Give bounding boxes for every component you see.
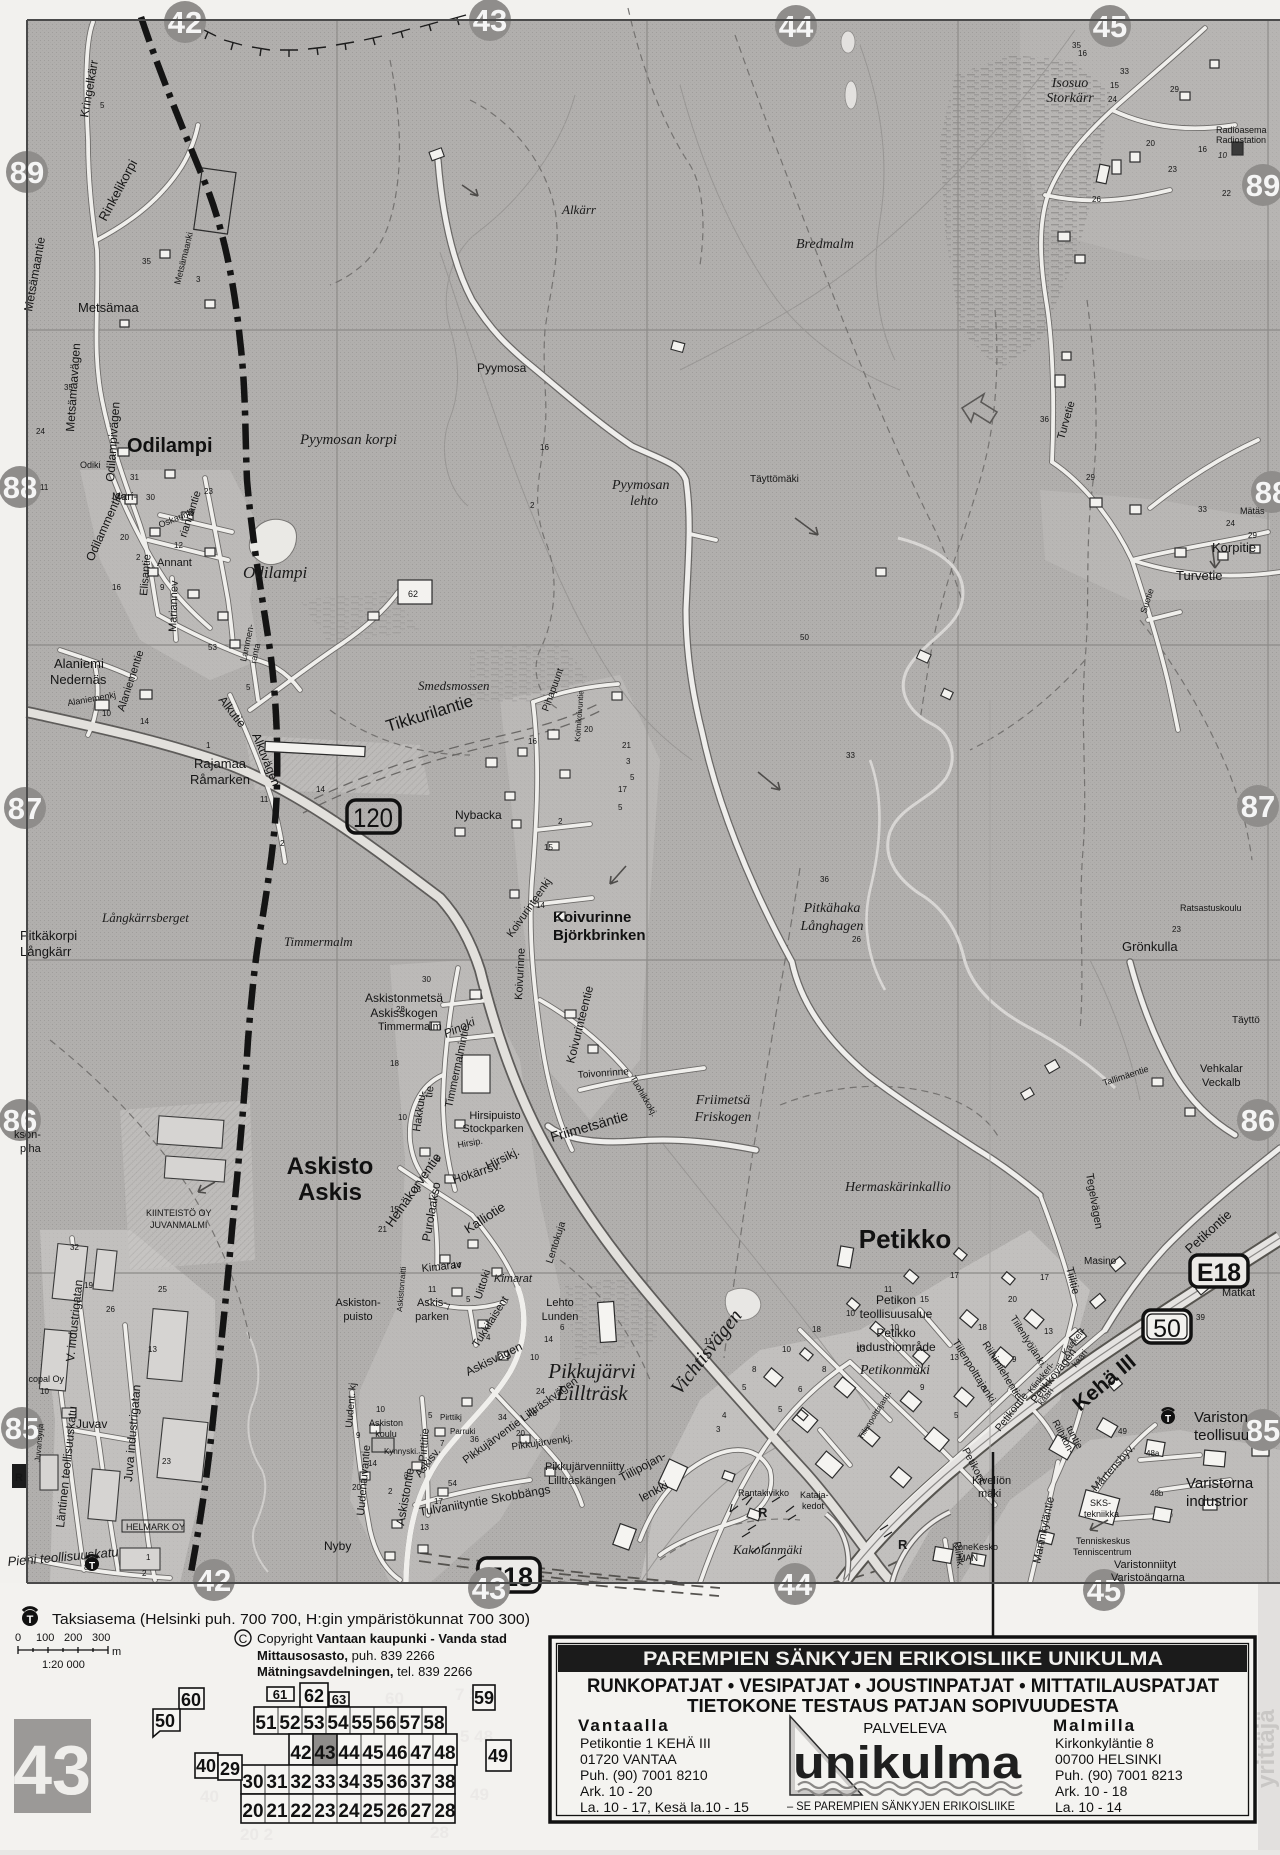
svg-text:T: T bbox=[1165, 1414, 1171, 1425]
svg-text:Askiston: Askiston bbox=[369, 1418, 403, 1428]
svg-text:T: T bbox=[27, 1614, 34, 1626]
svg-text:43: 43 bbox=[472, 1571, 506, 1606]
svg-text:Pyymosan: Pyymosan bbox=[611, 478, 670, 493]
svg-text:13: 13 bbox=[950, 1353, 959, 1362]
svg-text:45: 45 bbox=[362, 1743, 384, 1764]
svg-text:Nedernäs: Nedernäs bbox=[50, 672, 107, 687]
svg-text:PAREMPIEN SÄNKYJEN ERIKOISLIIK: PAREMPIEN SÄNKYJEN ERIKOISLIIKE UNIKULMA bbox=[643, 1649, 1163, 1670]
svg-text:30: 30 bbox=[422, 975, 431, 984]
svg-text:mäki: mäki bbox=[978, 1488, 1001, 1500]
svg-text:Matkat: Matkat bbox=[1222, 1287, 1255, 1299]
svg-text:00700 HELSINKI: 00700 HELSINKI bbox=[1055, 1751, 1162, 1767]
svg-text:Koivurinne: Koivurinne bbox=[553, 909, 631, 926]
svg-text:Rajamaa: Rajamaa bbox=[194, 756, 247, 771]
svg-text:KIINTEISTÖ OY: KIINTEISTÖ OY bbox=[146, 1208, 212, 1218]
svg-text:20: 20 bbox=[120, 533, 129, 542]
svg-text:8: 8 bbox=[822, 1365, 827, 1374]
svg-text:Askistonmetsä: Askistonmetsä bbox=[365, 991, 443, 1005]
svg-text:tie: tie bbox=[423, 1085, 437, 1098]
svg-text:3: 3 bbox=[404, 1471, 409, 1480]
svg-text:14: 14 bbox=[544, 1335, 553, 1344]
svg-text:Täyttö: Täyttö bbox=[1232, 1015, 1260, 1026]
svg-text:Hirsipuisto: Hirsipuisto bbox=[469, 1110, 520, 1122]
svg-text:6: 6 bbox=[798, 1385, 803, 1394]
svg-text:Turvetie: Turvetie bbox=[1176, 568, 1222, 583]
svg-text:Nybacka: Nybacka bbox=[455, 808, 502, 822]
svg-text:R: R bbox=[758, 1505, 768, 1520]
svg-text:24: 24 bbox=[338, 1801, 360, 1822]
svg-text:52: 52 bbox=[279, 1713, 300, 1734]
svg-text:PALVELEVA: PALVELEVA bbox=[863, 1720, 946, 1737]
svg-text:E18: E18 bbox=[1197, 1259, 1241, 1287]
svg-text:6: 6 bbox=[560, 1323, 565, 1332]
svg-text:15: 15 bbox=[920, 1295, 929, 1304]
svg-text:28: 28 bbox=[396, 1005, 405, 1014]
svg-text:Björkbrinken: Björkbrinken bbox=[553, 927, 646, 944]
svg-text:34: 34 bbox=[338, 1772, 360, 1793]
svg-text:Pikkujärvi: Pikkujärvi bbox=[547, 1359, 636, 1383]
svg-text:Nyby: Nyby bbox=[324, 1539, 351, 1553]
svg-text:3: 3 bbox=[626, 757, 631, 766]
svg-text:16: 16 bbox=[540, 443, 549, 452]
svg-text:4: 4 bbox=[722, 1411, 727, 1420]
svg-text:42: 42 bbox=[168, 5, 202, 40]
svg-text:1:20 000: 1:20 000 bbox=[42, 1659, 85, 1671]
svg-text:49: 49 bbox=[470, 1785, 489, 1804]
svg-text:Korpitie: Korpitie bbox=[1212, 540, 1256, 555]
svg-text:24: 24 bbox=[1226, 519, 1235, 528]
svg-text:34: 34 bbox=[498, 1413, 507, 1422]
svg-text:Juvav: Juvav bbox=[76, 1417, 107, 1431]
svg-text:R: R bbox=[15, 1472, 23, 1484]
svg-text:5: 5 bbox=[742, 1383, 747, 1392]
svg-text:53: 53 bbox=[303, 1713, 324, 1734]
svg-text:300: 300 bbox=[92, 1632, 110, 1644]
svg-text:Radioasema: Radioasema bbox=[1216, 125, 1267, 135]
svg-text:Petikko: Petikko bbox=[859, 1224, 952, 1254]
svg-text:33: 33 bbox=[846, 751, 855, 760]
svg-text:43: 43 bbox=[13, 1731, 91, 1809]
svg-text:14: 14 bbox=[368, 1459, 377, 1468]
svg-text:14: 14 bbox=[536, 901, 545, 910]
svg-text:60: 60 bbox=[385, 1689, 404, 1708]
svg-text:24: 24 bbox=[536, 1387, 545, 1396]
svg-text:Askis-: Askis- bbox=[417, 1297, 447, 1309]
svg-text:16: 16 bbox=[112, 583, 121, 592]
svg-text:10: 10 bbox=[890, 1323, 899, 1332]
svg-text:Tenniskeskus: Tenniskeskus bbox=[1076, 1536, 1131, 1546]
svg-text:36: 36 bbox=[820, 875, 829, 884]
svg-text:Veckalb: Veckalb bbox=[1202, 1077, 1241, 1089]
svg-text:14: 14 bbox=[452, 1261, 461, 1270]
svg-text:Kynnyski.: Kynnyski. bbox=[384, 1447, 418, 1456]
svg-text:Alkärr: Alkärr bbox=[561, 202, 597, 217]
svg-text:43: 43 bbox=[314, 1743, 335, 1764]
svg-text:industrior: industrior bbox=[1186, 1493, 1248, 1510]
svg-text:Ark. 10 - 18: Ark. 10 - 18 bbox=[1055, 1783, 1128, 1799]
svg-text:Storkärr: Storkärr bbox=[1046, 91, 1094, 106]
svg-text:12: 12 bbox=[174, 541, 183, 550]
svg-text:24: 24 bbox=[1108, 95, 1117, 104]
svg-text:– SE PAREMPIEN SÄNKYJEN ERIKOI: – SE PAREMPIEN SÄNKYJEN ERIKOISLIIKE bbox=[787, 1799, 1015, 1813]
svg-text:54: 54 bbox=[448, 1479, 457, 1488]
svg-text:teollisuu: teollisuu bbox=[1194, 1427, 1249, 1444]
svg-text:17: 17 bbox=[434, 1497, 443, 1506]
svg-text:5: 5 bbox=[100, 101, 105, 110]
svg-text:14: 14 bbox=[316, 785, 325, 794]
svg-text:13: 13 bbox=[1044, 1327, 1053, 1336]
svg-text:2: 2 bbox=[558, 817, 563, 826]
svg-text:R: R bbox=[898, 1537, 908, 1552]
svg-text:17: 17 bbox=[950, 1271, 959, 1280]
svg-text:86: 86 bbox=[1241, 1103, 1275, 1138]
svg-text:53: 53 bbox=[208, 643, 217, 652]
svg-text:Odilampi: Odilampi bbox=[127, 435, 213, 457]
svg-text:26: 26 bbox=[386, 1801, 407, 1822]
svg-text:44: 44 bbox=[779, 9, 814, 44]
svg-text:20: 20 bbox=[1146, 139, 1155, 148]
svg-text:16: 16 bbox=[1198, 145, 1207, 154]
svg-text:10: 10 bbox=[40, 1387, 49, 1396]
svg-text:2: 2 bbox=[142, 1569, 147, 1578]
svg-text:JUVANMALMI: JUVANMALMI bbox=[150, 1220, 207, 1230]
svg-text:Varistonniityt: Varistonniityt bbox=[1114, 1559, 1176, 1571]
svg-text:44: 44 bbox=[778, 1567, 813, 1602]
svg-text:5: 5 bbox=[466, 1295, 471, 1304]
svg-text:44: 44 bbox=[338, 1743, 360, 1764]
svg-text:51: 51 bbox=[255, 1713, 277, 1734]
svg-text:8: 8 bbox=[752, 1365, 757, 1374]
svg-text:Copyright Vantaan kaupunki - V: Copyright Vantaan kaupunki - Vanda stad bbox=[257, 1631, 507, 1646]
svg-text:58: 58 bbox=[423, 1713, 444, 1734]
svg-text:21: 21 bbox=[378, 1225, 387, 1234]
svg-text:koulu: koulu bbox=[375, 1429, 397, 1439]
svg-text:yrittäjä: yrittäjä bbox=[1253, 1709, 1280, 1788]
svg-text:01720 VANTAA: 01720 VANTAA bbox=[580, 1751, 677, 1767]
svg-text:Mari-: Mari- bbox=[112, 491, 137, 503]
svg-text:10: 10 bbox=[1218, 151, 1227, 160]
svg-text:25: 25 bbox=[362, 1801, 384, 1822]
svg-text:35: 35 bbox=[142, 257, 151, 266]
svg-text:28: 28 bbox=[434, 1801, 455, 1822]
svg-text:20: 20 bbox=[516, 1429, 525, 1438]
svg-text:200: 200 bbox=[64, 1632, 82, 1644]
svg-text:Petikonmäki: Petikonmäki bbox=[859, 1363, 930, 1378]
svg-text:15: 15 bbox=[1110, 81, 1119, 90]
svg-text:23: 23 bbox=[204, 487, 213, 496]
svg-text:49: 49 bbox=[1118, 1427, 1127, 1436]
svg-text:10: 10 bbox=[782, 1345, 791, 1354]
svg-text:29: 29 bbox=[1086, 473, 1095, 482]
svg-text:4: 4 bbox=[486, 1333, 491, 1342]
svg-text:10: 10 bbox=[846, 1309, 855, 1318]
svg-text:40: 40 bbox=[196, 1756, 216, 1776]
svg-text:19: 19 bbox=[84, 1281, 93, 1290]
svg-text:18: 18 bbox=[978, 1323, 987, 1332]
svg-text:Mätäs: Mätäs bbox=[1240, 506, 1265, 516]
svg-text:TIETOKONE TESTAUS PATJAN SOPIV: TIETOKONE TESTAUS PATJAN SOPIVUUDESTA bbox=[687, 1696, 1119, 1716]
svg-text:Kimarat: Kimarat bbox=[494, 1273, 533, 1285]
svg-text:42: 42 bbox=[197, 1563, 231, 1598]
svg-text:Masino: Masino bbox=[1084, 1256, 1117, 1267]
svg-text:27: 27 bbox=[410, 1801, 431, 1822]
svg-text:Lillträskängen: Lillträskängen bbox=[548, 1475, 616, 1487]
svg-text:Malmilla: Malmilla bbox=[1053, 1716, 1136, 1735]
svg-text:15: 15 bbox=[544, 843, 553, 852]
svg-text:Hermaskärinkallio: Hermaskärinkallio bbox=[844, 1180, 951, 1195]
svg-text:Lehto: Lehto bbox=[546, 1297, 574, 1309]
svg-text:20 2: 20 2 bbox=[240, 1825, 273, 1844]
svg-text:26: 26 bbox=[106, 1305, 115, 1314]
svg-text:Pyymosan korpi: Pyymosan korpi bbox=[299, 432, 397, 448]
svg-text:17: 17 bbox=[1040, 1273, 1049, 1282]
svg-text:30: 30 bbox=[242, 1772, 263, 1793]
svg-text:21: 21 bbox=[622, 741, 631, 750]
svg-text:5: 5 bbox=[618, 803, 623, 812]
svg-text:Puh. (90) 7001 8210: Puh. (90) 7001 8210 bbox=[580, 1767, 708, 1783]
svg-text:1: 1 bbox=[146, 1553, 151, 1562]
svg-text:28: 28 bbox=[430, 1823, 449, 1842]
svg-text:46: 46 bbox=[386, 1743, 407, 1764]
svg-text:85: 85 bbox=[1246, 1413, 1280, 1448]
svg-text:5: 5 bbox=[630, 773, 635, 782]
svg-text:35: 35 bbox=[362, 1772, 384, 1793]
svg-text:Askis: Askis bbox=[298, 1179, 362, 1206]
svg-text:La. 10 - 14: La. 10 - 14 bbox=[1055, 1799, 1122, 1815]
svg-text:unikulma: unikulma bbox=[793, 1737, 1022, 1788]
svg-text:56: 56 bbox=[375, 1713, 396, 1734]
svg-text:Vantaalla: Vantaalla bbox=[578, 1716, 670, 1735]
svg-text:SKS-: SKS- bbox=[1090, 1498, 1111, 1508]
svg-text:Mittausosasto, puh. 839 2266: Mittausosasto, puh. 839 2266 bbox=[257, 1648, 435, 1663]
svg-text:11: 11 bbox=[40, 483, 49, 492]
svg-text:3: 3 bbox=[196, 275, 201, 284]
svg-text:5: 5 bbox=[954, 1411, 959, 1420]
svg-text:5: 5 bbox=[246, 683, 251, 692]
svg-text:2: 2 bbox=[530, 501, 535, 510]
svg-text:Odilampi: Odilampi bbox=[243, 563, 308, 582]
svg-text:16: 16 bbox=[528, 737, 537, 746]
svg-text:120: 120 bbox=[353, 803, 393, 833]
svg-text:63: 63 bbox=[332, 1692, 346, 1707]
svg-text:22: 22 bbox=[1222, 189, 1231, 198]
svg-text:0: 0 bbox=[15, 1632, 21, 1644]
svg-text:54: 54 bbox=[327, 1713, 349, 1734]
svg-text:100: 100 bbox=[36, 1632, 54, 1644]
svg-text:m: m bbox=[112, 1646, 121, 1658]
svg-text:21: 21 bbox=[266, 1801, 288, 1822]
svg-text:20: 20 bbox=[352, 1483, 361, 1492]
svg-text:7: 7 bbox=[440, 1439, 445, 1448]
svg-text:Pitkähaka: Pitkähaka bbox=[803, 901, 861, 916]
svg-text:Friskogen: Friskogen bbox=[694, 1110, 752, 1125]
svg-text:32: 32 bbox=[290, 1772, 311, 1793]
svg-text:25: 25 bbox=[158, 1285, 167, 1294]
svg-text:Taksiasema (Helsinki puh. 700: Taksiasema (Helsinki puh. 700 700, H:gin… bbox=[52, 1611, 530, 1628]
svg-text:40: 40 bbox=[200, 1787, 219, 1806]
svg-text:Kakolanmäki: Kakolanmäki bbox=[732, 1542, 803, 1557]
svg-text:39: 39 bbox=[1196, 1313, 1205, 1322]
svg-text:20: 20 bbox=[584, 725, 593, 734]
svg-text:tekniikka: tekniikka bbox=[1084, 1509, 1119, 1519]
svg-text:35: 35 bbox=[64, 383, 73, 392]
svg-text:24: 24 bbox=[36, 427, 45, 436]
svg-text:47: 47 bbox=[410, 1743, 431, 1764]
svg-text:48b: 48b bbox=[1150, 1489, 1164, 1498]
svg-text:5: 5 bbox=[428, 1411, 433, 1420]
svg-text:9: 9 bbox=[920, 1383, 925, 1392]
svg-text:Annant: Annant bbox=[157, 557, 192, 569]
svg-text:Rantakivikko: Rantakivikko bbox=[738, 1488, 789, 1498]
svg-text:Stockparken: Stockparken bbox=[462, 1123, 523, 1135]
svg-text:33: 33 bbox=[1198, 505, 1207, 514]
svg-text:Vehkalar: Vehkalar bbox=[1200, 1063, 1243, 1075]
svg-text:Bredmalm: Bredmalm bbox=[796, 237, 854, 252]
svg-text:Täyttömäki: Täyttömäki bbox=[750, 474, 799, 485]
svg-text:HELMARK OY: HELMARK OY bbox=[126, 1522, 185, 1532]
svg-text:48: 48 bbox=[434, 1743, 455, 1764]
svg-text:55: 55 bbox=[351, 1713, 373, 1734]
svg-text:Odiki: Odiki bbox=[80, 460, 101, 470]
svg-text:puisto: puisto bbox=[343, 1311, 372, 1323]
svg-text:29: 29 bbox=[1170, 85, 1179, 94]
svg-text:1: 1 bbox=[206, 741, 211, 750]
svg-text:Friimetsä: Friimetsä bbox=[695, 1093, 750, 1108]
svg-text:Lunden: Lunden bbox=[542, 1311, 579, 1323]
svg-text:lehto: lehto bbox=[630, 494, 658, 509]
svg-text:50: 50 bbox=[1153, 1315, 1181, 1343]
svg-text:60: 60 bbox=[181, 1690, 201, 1710]
svg-text:18: 18 bbox=[390, 1059, 399, 1068]
svg-text:50: 50 bbox=[800, 633, 809, 642]
svg-text:Pikkujärvenniitty: Pikkujärvenniitty bbox=[545, 1461, 625, 1473]
svg-text:La. 10 - 17, Kesä la.10 - 1: La. 10 - 17, Kesä la.10 - 15 bbox=[580, 1799, 749, 1815]
svg-text:Ratsastuskoulu: Ratsastuskoulu bbox=[1180, 903, 1242, 913]
svg-text:11: 11 bbox=[704, 1337, 713, 1346]
svg-text:kedot: kedot bbox=[802, 1501, 825, 1511]
svg-text:87: 87 bbox=[8, 791, 42, 826]
svg-text:5: 5 bbox=[778, 1405, 783, 1414]
svg-text:2: 2 bbox=[388, 1487, 393, 1496]
svg-text:36: 36 bbox=[470, 1435, 479, 1444]
svg-text:Långhagen: Långhagen bbox=[800, 919, 864, 934]
svg-text:Askiston-: Askiston- bbox=[335, 1297, 381, 1309]
svg-text:13: 13 bbox=[420, 1523, 429, 1532]
svg-text:48a: 48a bbox=[1146, 1449, 1160, 1458]
svg-text:26: 26 bbox=[852, 935, 861, 944]
svg-text:23: 23 bbox=[314, 1801, 335, 1822]
svg-text:10: 10 bbox=[530, 1353, 539, 1362]
svg-text:Timmermalm: Timmermalm bbox=[378, 1021, 442, 1033]
svg-text:Petikon: Petikon bbox=[876, 1293, 916, 1307]
svg-text:Radiostation: Radiostation bbox=[1216, 135, 1266, 145]
svg-text:23: 23 bbox=[1172, 925, 1181, 934]
svg-text:Långkärrsberget: Långkärrsberget bbox=[101, 910, 189, 925]
svg-text:20: 20 bbox=[242, 1801, 263, 1822]
svg-text:62: 62 bbox=[408, 589, 418, 599]
svg-text:Ark. 10 - 20: Ark. 10 - 20 bbox=[580, 1783, 653, 1799]
svg-text:28: 28 bbox=[528, 1409, 537, 1418]
svg-text:Tenniscentrum: Tenniscentrum bbox=[1073, 1547, 1132, 1557]
svg-text:Petikontie 1 KEHÄ III: Petikontie 1 KEHÄ III bbox=[580, 1735, 711, 1751]
svg-text:Metsämaa: Metsämaa bbox=[78, 300, 139, 315]
svg-text:88: 88 bbox=[1255, 475, 1280, 510]
svg-text:29: 29 bbox=[1248, 531, 1257, 540]
svg-text:57: 57 bbox=[399, 1713, 420, 1734]
svg-text:9: 9 bbox=[160, 583, 165, 592]
svg-text:2: 2 bbox=[280, 839, 285, 848]
svg-text:23: 23 bbox=[162, 1457, 171, 1466]
svg-text:7: 7 bbox=[446, 1303, 451, 1312]
svg-text:2: 2 bbox=[136, 553, 141, 562]
svg-text:61: 61 bbox=[273, 1687, 287, 1702]
svg-text:15: 15 bbox=[390, 1205, 399, 1214]
svg-text:8: 8 bbox=[436, 1155, 441, 1164]
svg-text:Timmermalm: Timmermalm bbox=[284, 934, 353, 949]
svg-text:RUNKOPATJAT • VESIPATJAT • JOU: RUNKOPATJAT • VESIPATJAT • JOUSTINPATJAT… bbox=[587, 1676, 1219, 1697]
svg-text:87: 87 bbox=[1241, 789, 1275, 824]
svg-text:10: 10 bbox=[376, 1405, 385, 1414]
svg-text:teollisuusalue: teollisuusalue bbox=[860, 1307, 933, 1321]
svg-text:45: 45 bbox=[1093, 9, 1127, 44]
svg-text:Askisto: Askisto bbox=[287, 1153, 374, 1180]
svg-text:Råmarken: Råmarken bbox=[190, 772, 250, 787]
svg-text:31: 31 bbox=[266, 1772, 288, 1793]
svg-text:11: 11 bbox=[428, 1285, 437, 1294]
svg-text:17: 17 bbox=[618, 785, 627, 794]
svg-text:7: 7 bbox=[982, 1385, 987, 1394]
svg-text:Grönkulla: Grönkulla bbox=[1122, 939, 1178, 954]
svg-text:13: 13 bbox=[148, 1345, 157, 1354]
svg-text:Smedsmossen: Smedsmossen bbox=[418, 678, 490, 693]
svg-text:88: 88 bbox=[3, 470, 37, 505]
svg-text:16: 16 bbox=[1078, 49, 1087, 58]
svg-text:42: 42 bbox=[290, 1743, 311, 1764]
svg-text:9: 9 bbox=[356, 1431, 361, 1440]
svg-text:Kirkonkyläntie 8: Kirkonkyläntie 8 bbox=[1055, 1735, 1154, 1751]
svg-text:89: 89 bbox=[1246, 168, 1280, 203]
svg-text:parken: parken bbox=[415, 1311, 449, 1323]
svg-text:50: 50 bbox=[155, 1711, 175, 1731]
svg-text:Pirttikj: Pirttikj bbox=[440, 1413, 462, 1422]
svg-text:36: 36 bbox=[1040, 415, 1049, 424]
svg-text:10: 10 bbox=[102, 709, 111, 718]
svg-text:Kivelíön: Kivelíön bbox=[972, 1475, 1011, 1487]
svg-text:Icopal Oy: Icopal Oy bbox=[26, 1374, 65, 1384]
svg-text:Varistorna: Varistorna bbox=[1186, 1475, 1254, 1492]
svg-text:Puh. (90) 7001 8213: Puh. (90) 7001 8213 bbox=[1055, 1767, 1183, 1783]
svg-text:9: 9 bbox=[1012, 1355, 1017, 1364]
svg-text:32: 32 bbox=[70, 1243, 79, 1252]
svg-text:Pyymosa: Pyymosa bbox=[477, 361, 527, 375]
svg-text:piha: piha bbox=[20, 1143, 42, 1155]
svg-text:11: 11 bbox=[260, 795, 269, 804]
svg-text:3: 3 bbox=[716, 1425, 721, 1434]
svg-text:38: 38 bbox=[434, 1772, 455, 1793]
svg-text:37: 37 bbox=[410, 1772, 431, 1793]
svg-text:13: 13 bbox=[856, 1345, 865, 1354]
svg-text:Mariannev: Mariannev bbox=[167, 580, 181, 632]
svg-text:11: 11 bbox=[884, 1285, 893, 1294]
svg-text:18: 18 bbox=[812, 1325, 821, 1334]
svg-text:Kataja-: Kataja- bbox=[800, 1490, 829, 1500]
svg-text:Variston: Variston bbox=[1194, 1409, 1248, 1426]
svg-text:8: 8 bbox=[84, 1563, 89, 1572]
svg-text:29: 29 bbox=[220, 1759, 240, 1779]
svg-text:36: 36 bbox=[386, 1772, 407, 1793]
svg-text:14: 14 bbox=[140, 717, 149, 726]
svg-text:26: 26 bbox=[1092, 195, 1101, 204]
